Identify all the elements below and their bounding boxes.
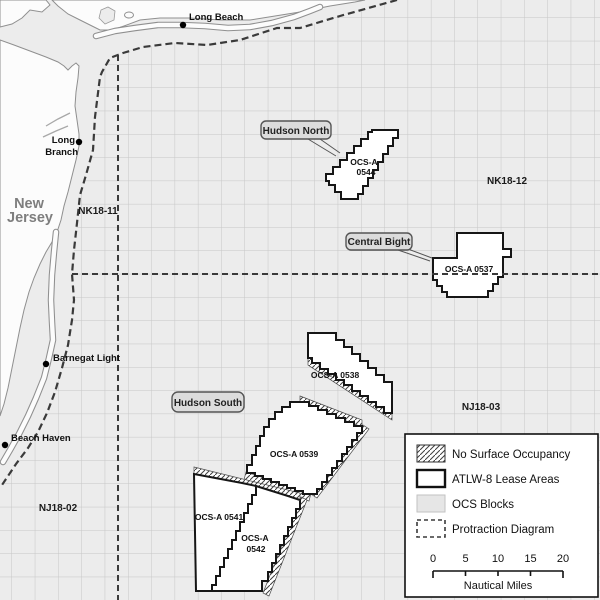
legend-swatch-no-surface-occupancy [417,445,445,462]
legend-label-ocs-blocks: OCS Blocks [452,499,514,511]
protraction-label-nk18-11: NK18-11 [78,206,118,217]
lease-label-ocs-a-0541: OCS-A 0541 [195,512,244,522]
lease-label-ocs-a-0544-line2: 0544 [357,167,376,177]
beach-haven-dot [2,442,8,448]
state-label-line2: Jersey [7,210,53,226]
central-bight-callout-label: Central Bight [348,237,411,248]
map-canvas: Hudson North Central Bight Hudson South … [0,0,600,600]
bay-island [125,12,134,18]
lease-label-ocs-a-0538: OCS-A 0538 [311,370,360,380]
scale-unit-label: Nautical Miles [464,580,533,592]
beach-haven-label: Beach Haven [11,433,71,444]
legend-label-no-surface-occupancy: No Surface Occupancy [452,449,571,461]
lease-label-ocs-a-0544-line1: OCS-A [350,157,377,167]
barnegat-light-label: Barnegat Light [53,353,121,364]
scale-tick-5: 5 [462,553,468,565]
scale-tick-0: 0 [430,553,436,565]
lease-label-ocs-a-0537: OCS-A 0537 [445,264,494,274]
lease-label-ocs-a-0539: OCS-A 0539 [270,449,319,459]
barnegat-light-dot [43,361,49,367]
protraction-label-nj18-02: NJ18-02 [39,503,78,514]
long-branch-label-line2: Branch [45,147,78,158]
legend-swatch-ocs-blocks [417,495,445,512]
scale-tick-15: 15 [524,553,536,565]
long-beach-dot [180,22,186,28]
hudson-north-callout-label: Hudson North [263,126,330,137]
hudson-south-callout-label: Hudson South [174,398,242,409]
long-branch-label-line1: Long [52,135,75,146]
protraction-label-nj18-03: NJ18-03 [462,402,501,413]
scale-tick-10: 10 [492,553,504,565]
lease-label-ocs-a-0542-line2: 0542 [247,544,266,554]
legend-swatch-protraction-diagram [417,520,445,537]
lease-label-ocs-a-0542-line1: OCS-A [241,533,268,543]
legend-swatch-lease-areas [417,470,445,487]
legend: No Surface Occupancy ATLW-8 Lease Areas … [405,434,598,597]
long-branch-dot [76,139,82,145]
lease-map: Hudson North Central Bight Hudson South … [0,0,600,600]
legend-label-lease-areas: ATLW-8 Lease Areas [452,474,560,486]
protraction-label-nk18-12: NK18-12 [487,176,527,187]
legend-label-protraction-diagram: Protraction Diagram [452,524,554,536]
scale-tick-20: 20 [557,553,569,565]
long-beach-label: Long Beach [189,12,244,23]
